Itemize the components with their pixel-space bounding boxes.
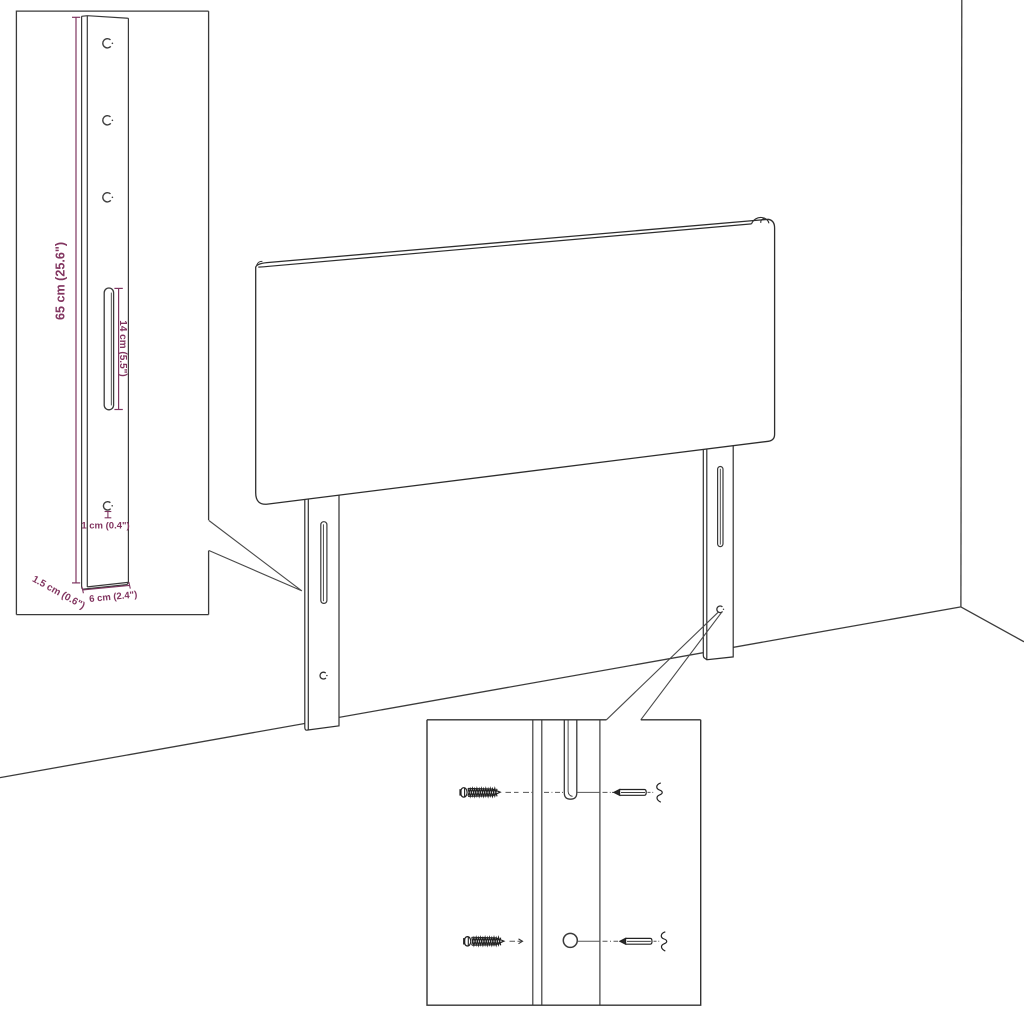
svg-text:14 cm (5.5"): 14 cm (5.5") xyxy=(117,320,128,376)
svg-text:1 cm (0.4"): 1 cm (0.4") xyxy=(81,521,129,532)
svg-text:65 cm (25.6"): 65 cm (25.6") xyxy=(54,242,68,320)
